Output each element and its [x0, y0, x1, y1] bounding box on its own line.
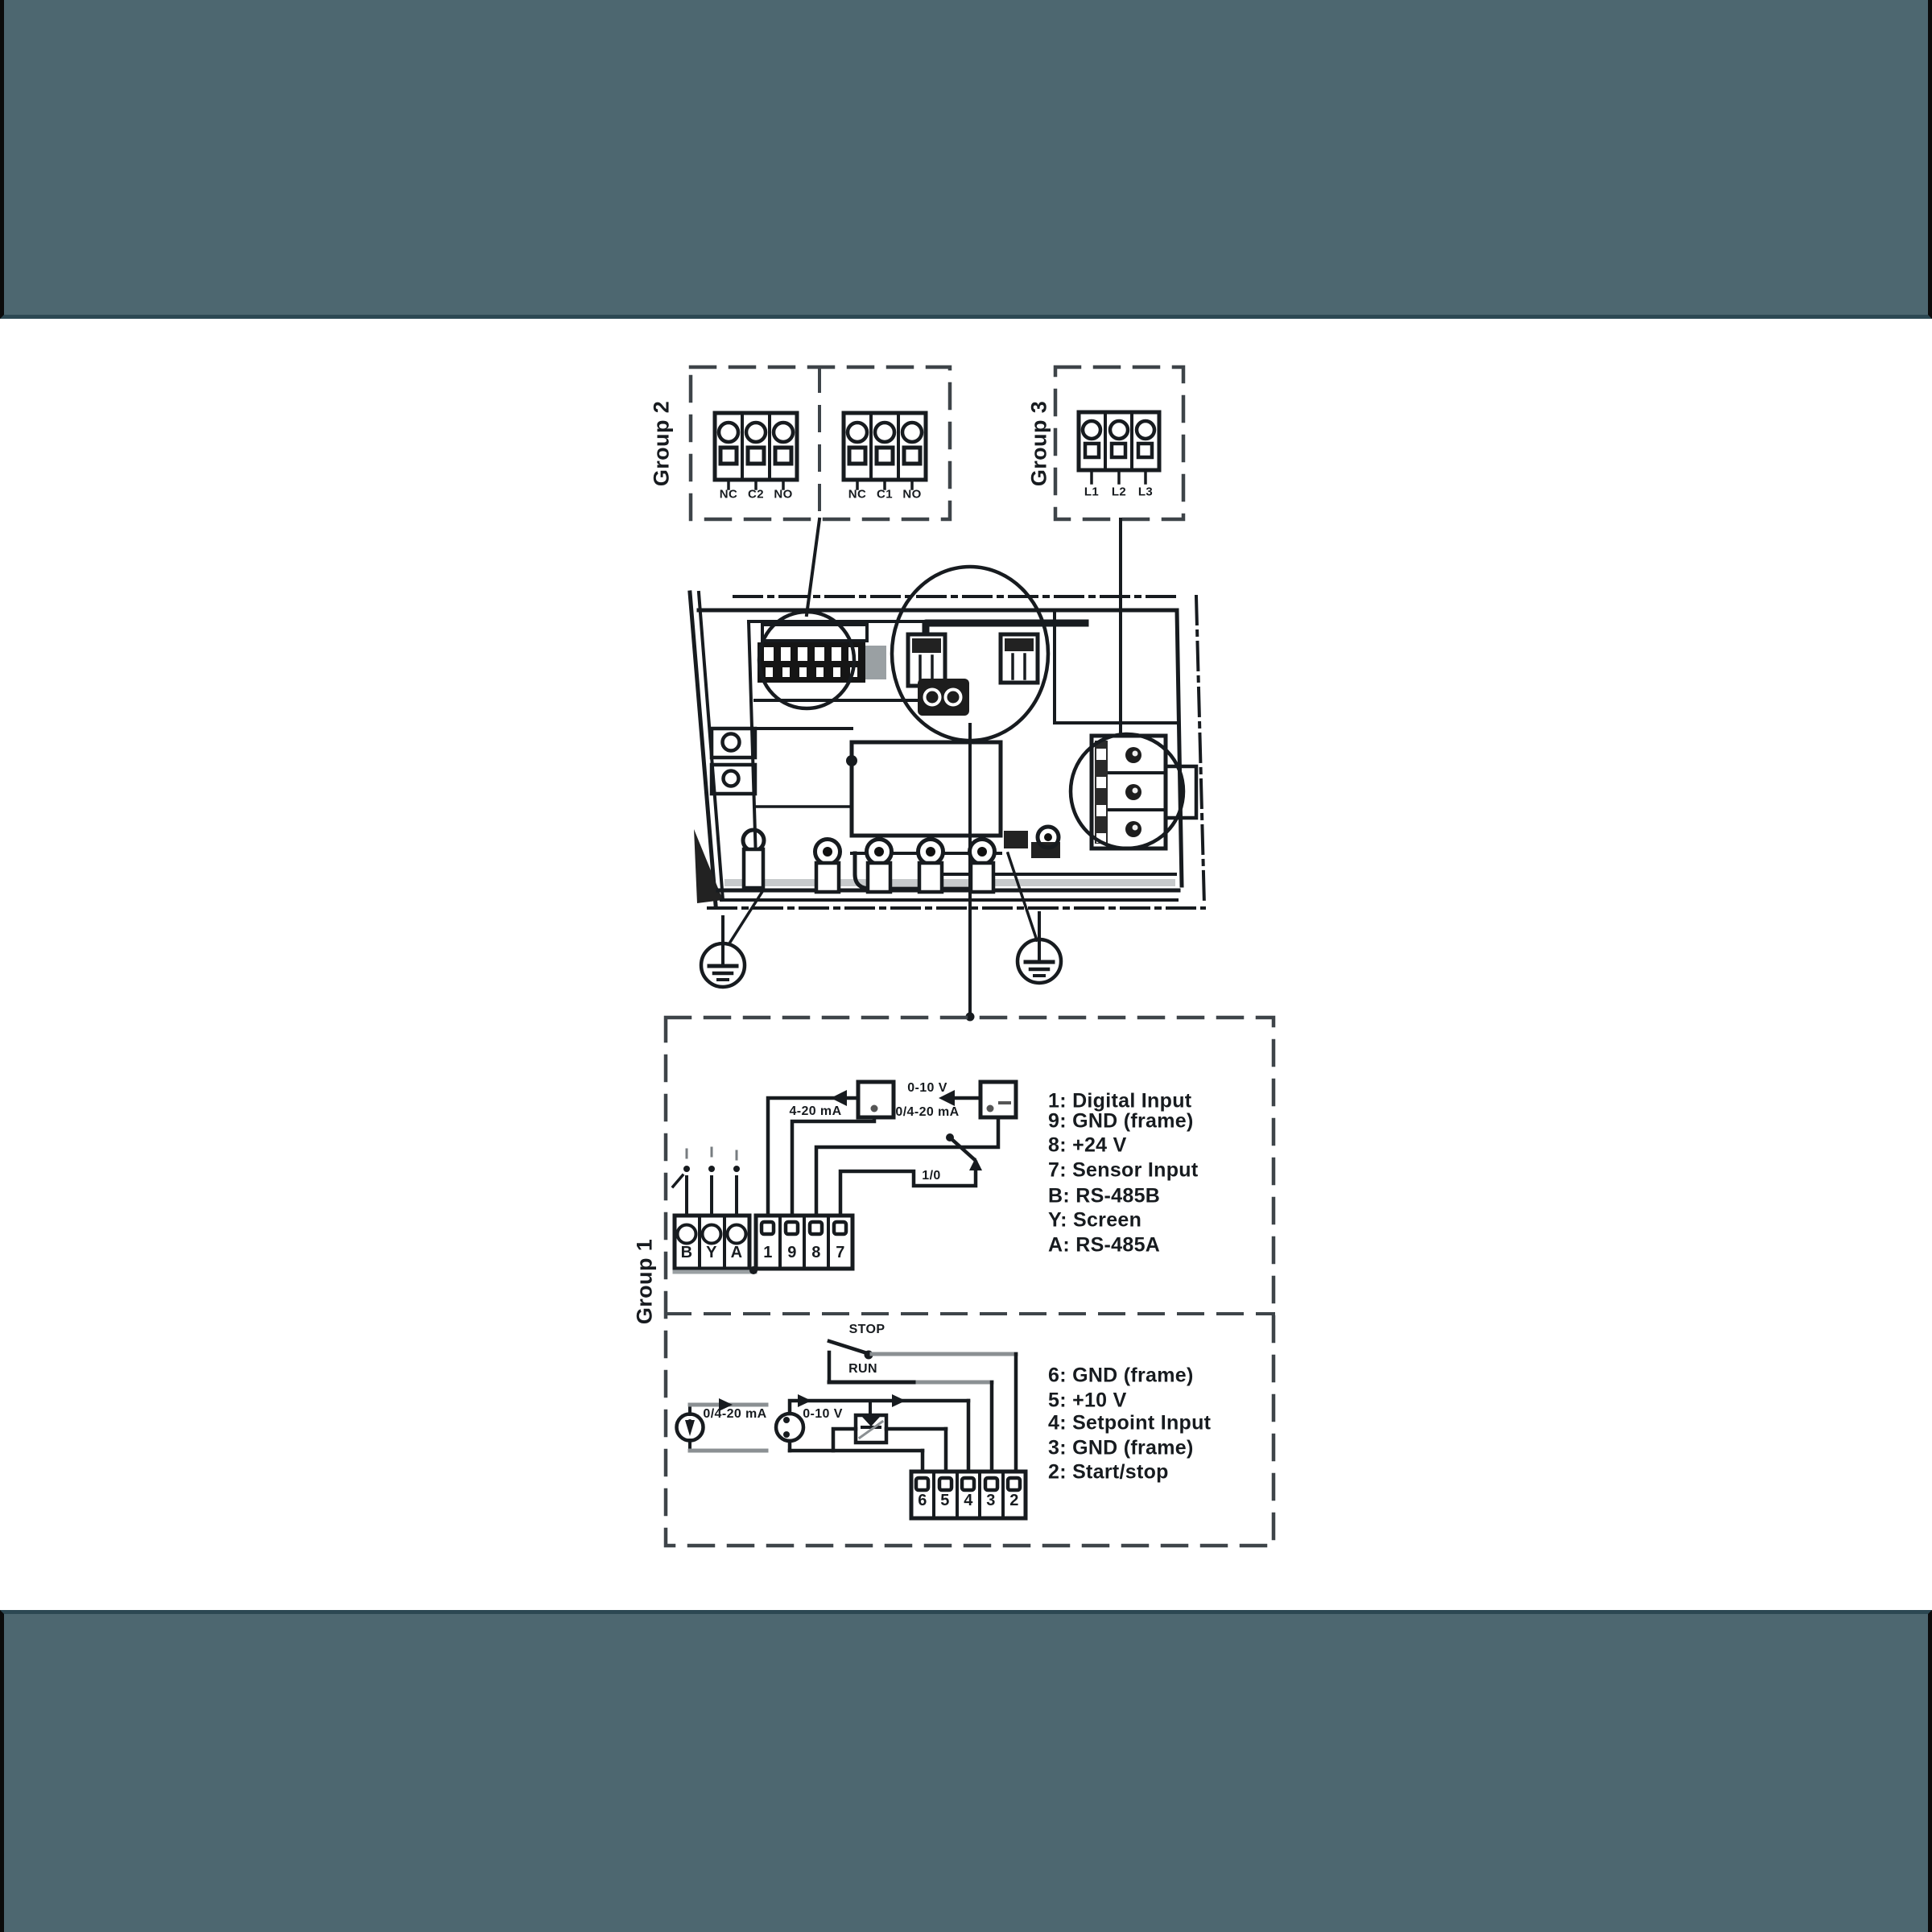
group1-label: Group 1: [634, 1239, 656, 1324]
comm-terminal-label: A: [731, 1245, 743, 1261]
relay-terminal-label: NC: [720, 489, 737, 501]
legend-line: 1: Digital Input: [1048, 1092, 1191, 1112]
legend-line: 2: Start/stop: [1048, 1463, 1169, 1483]
manual-page: Group 2 Group 3 Group 1 NC C2 NO NC C1 N…: [0, 0, 1932, 1932]
ground-symbol-right: [1018, 913, 1061, 983]
legend-line: 6: GND (frame): [1048, 1366, 1194, 1386]
output-terminal-label: 5: [940, 1492, 950, 1509]
output-terminal-label: 4: [964, 1492, 973, 1509]
io-terminal-label: 9: [787, 1245, 797, 1261]
wire-label-sensor-signal: 0/4-20 mA: [703, 1408, 766, 1421]
io-terminal-label: 1: [763, 1245, 773, 1261]
legend-line: 3: GND (frame): [1048, 1439, 1194, 1459]
wire-label-signal-voltage: 0-10 V: [907, 1082, 947, 1095]
output-terminal-label: 2: [1009, 1492, 1019, 1509]
terminal-box-drawing: [690, 567, 1204, 908]
io-terminal-label: 8: [811, 1245, 821, 1261]
wire-label-sensor-current: 4-20 mA: [789, 1105, 841, 1118]
wiring-diagram-linework: [0, 0, 1932, 1932]
legend-line: 7: Sensor Input: [1048, 1161, 1198, 1181]
wire-label-signal-current: 0/4-20 mA: [895, 1106, 959, 1119]
legend-line: B: RS-485B: [1048, 1187, 1160, 1207]
relay-terminal-label: NO: [774, 489, 792, 501]
legend-line: 4: Setpoint Input: [1048, 1414, 1211, 1434]
power-terminal-label: L1: [1084, 486, 1099, 498]
group2-relay-block-1: [715, 413, 797, 489]
wire-label-run: RUN: [848, 1363, 877, 1376]
output-terminal-label: 3: [986, 1492, 996, 1509]
group3-label: Group 3: [1029, 401, 1051, 486]
legend-line: Y: Screen: [1048, 1211, 1141, 1231]
wire-label-switch: 1/0: [922, 1170, 940, 1183]
wire-label-pot-voltage: 0-10 V: [803, 1408, 843, 1421]
group2-relay-block-2: [844, 413, 926, 489]
output-terminal-label: 6: [918, 1492, 927, 1509]
relay-terminal-label: C2: [748, 489, 764, 501]
legend-line: 5: +10 V: [1048, 1391, 1127, 1411]
comm-terminal-label: B: [681, 1245, 693, 1261]
wire-label-stop: STOP: [849, 1323, 885, 1336]
io-terminal-label: 7: [836, 1245, 845, 1261]
legend-line: A: RS-485A: [1048, 1236, 1160, 1256]
group3-power-block: [1079, 412, 1159, 483]
group2-label: Group 2: [651, 401, 673, 486]
power-terminal-label: L3: [1138, 486, 1153, 498]
power-terminal-label: L2: [1112, 486, 1126, 498]
relay-terminal-label: NO: [902, 489, 921, 501]
comm-terminal-label: Y: [706, 1245, 717, 1261]
relay-terminal-label: NC: [848, 489, 866, 501]
legend-line: 9: GND (frame): [1048, 1112, 1194, 1132]
relay-terminal-label: C1: [877, 489, 893, 501]
legend-line: 8: +24 V: [1048, 1136, 1127, 1156]
